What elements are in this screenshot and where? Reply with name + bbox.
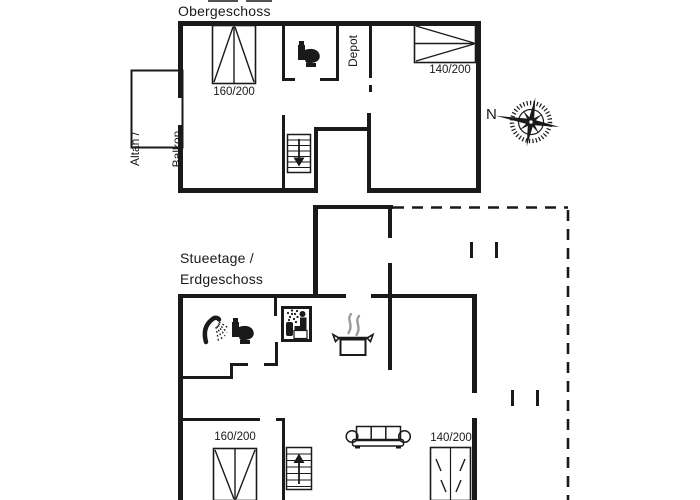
balcony-label-line2: Balkon	[170, 113, 184, 185]
bed-size-label-lower-left: 160/200	[205, 431, 265, 443]
depot-label: Depot	[346, 24, 360, 78]
bed-140-upper	[415, 25, 476, 63]
bed-140-lower	[431, 448, 471, 500]
bed-size-label-upper-right: 140/200	[420, 64, 480, 76]
door-step-marks-entrance	[470, 242, 498, 258]
balcony-label: Altan / Balkon	[100, 113, 212, 185]
cropped-artifact	[208, 0, 272, 2]
bed-size-label-upper-left: 160/200	[204, 86, 264, 98]
floor-plan-canvas: Obergeschoss Altan / Balkon Depot 160/20…	[0, 0, 700, 500]
upper-floor-walls	[178, 21, 481, 193]
compass-rose-icon	[491, 91, 564, 152]
stairs-up-icon	[287, 448, 312, 490]
compass-north-label: N	[486, 106, 497, 123]
ground-floor-title-line1: Stueetage /	[180, 250, 254, 266]
toilet-icon	[298, 41, 320, 67]
balcony-label-line1: Altan /	[128, 113, 142, 185]
upper-floor-title: Obergeschoss	[178, 3, 271, 19]
cooking-pot-icon	[333, 314, 373, 355]
sauna-icon	[283, 308, 311, 341]
sofa-icon	[346, 427, 410, 449]
bed-160-lower	[214, 449, 257, 500]
terrace-dashed-outline	[393, 208, 568, 500]
bed-size-label-lower-right: 140/200	[421, 432, 481, 444]
shower-icon	[205, 318, 229, 342]
toilet-icon	[232, 318, 254, 344]
door-step-marks-terrace	[511, 390, 539, 406]
stairs-down-icon	[288, 135, 311, 173]
bed-160-upper	[213, 26, 256, 84]
ground-floor-title-line2: Erdgeschoss	[180, 271, 263, 287]
